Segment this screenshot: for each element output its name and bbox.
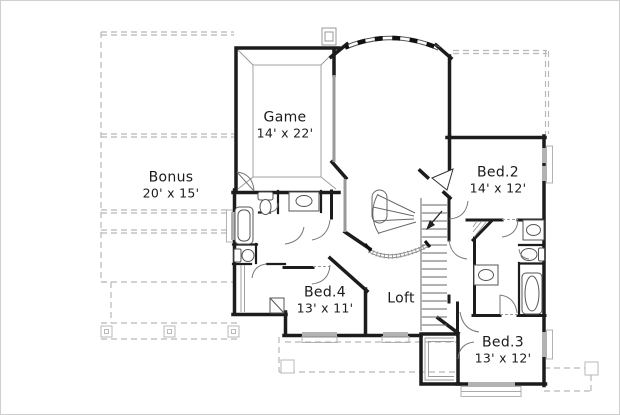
- floor-plan-canvas: Bonus 20' x 15' Game 14' x 22' Bed.2 14'…: [0, 0, 620, 415]
- room-dims: 14' x 22': [257, 126, 314, 141]
- room-label-bonus: Bonus 20' x 15': [143, 169, 200, 200]
- sink-icon: [479, 270, 494, 281]
- room-label-game: Game 14' x 22': [257, 109, 314, 140]
- room-name: Loft: [387, 291, 415, 308]
- room-name: Bed.4: [297, 284, 354, 301]
- room-dims: 14' x 12': [470, 181, 527, 196]
- room-label-bed3: Bed.3 13' x 12': [475, 334, 532, 365]
- loft-railing: [365, 241, 430, 258]
- toilet-tank-icon: [234, 249, 241, 262]
- room-dims: 13' x 12': [475, 351, 532, 366]
- room-name: Bonus: [143, 169, 200, 186]
- room-name: Bed.2: [470, 164, 527, 181]
- staircase: [372, 190, 447, 331]
- sink-icon: [527, 225, 541, 236]
- room-name: Game: [257, 109, 314, 126]
- room-label-bed2: Bed.2 14' x 12': [470, 164, 527, 195]
- room-label-loft: Loft: [387, 291, 415, 308]
- sink-icon: [296, 196, 312, 207]
- room-name: Bed.3: [475, 334, 532, 351]
- bay-window: [344, 36, 440, 50]
- half-walls: [334, 75, 345, 232]
- toilet-tank-icon: [258, 192, 273, 200]
- room-label-bed4: Bed.4 13' x 11': [297, 284, 354, 315]
- toilet-bowl-icon: [242, 250, 254, 262]
- chimney-box: [322, 28, 336, 45]
- room-dims: 13' x 11': [297, 301, 354, 316]
- room-dims: 20' x 15': [143, 186, 200, 201]
- toilet-tank-icon: [539, 248, 545, 261]
- toilet-bowl-icon: [260, 200, 271, 215]
